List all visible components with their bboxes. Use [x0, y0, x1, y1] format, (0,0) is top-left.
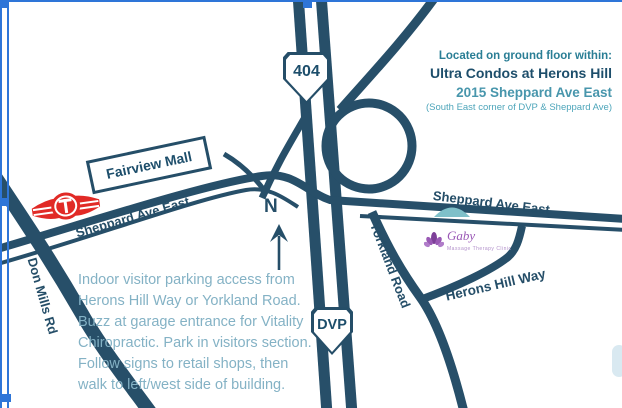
clinic-subtext: Massage Therapy Clinic	[447, 246, 512, 252]
north-arrow-icon	[268, 222, 292, 274]
info-line-corner: (South East corner of DVP & Sheppard Ave…	[426, 102, 612, 113]
selection-handle-left-middle[interactable]	[0, 198, 9, 206]
info-line-located: Located on ground floor within:	[426, 50, 612, 62]
highway-404-shield-label: 404	[293, 63, 320, 81]
faint-artifact	[612, 345, 622, 377]
parking-line: walk to left/west side of building.	[78, 375, 328, 396]
location-info-panel: Located on ground floor within: Ultra Co…	[426, 50, 612, 113]
map-image: 404 DVP Fairview Mall Sheppard Ave East …	[0, 0, 622, 408]
massage-clinic-logo: Gaby Massage Therapy Clinic	[424, 229, 512, 253]
parking-line: Chiropractic. Park in visitors section.	[78, 333, 328, 354]
north-label: N	[264, 196, 278, 218]
selection-handle-top-left[interactable]	[0, 0, 9, 8]
parking-instructions: Indoor visitor parking access from Heron…	[78, 270, 328, 396]
parking-line: Buzz at garage entrance for Vitality	[78, 312, 328, 333]
parking-line: Follow signs to retail shops, then	[78, 354, 328, 375]
parking-line: Indoor visitor parking access from	[78, 270, 328, 291]
selection-handle-bottom-left[interactable]	[2, 394, 11, 402]
northeast-ramp	[340, 0, 436, 110]
info-line-building: Ultra Condos at Herons Hill	[426, 65, 612, 81]
loop-ramp	[326, 103, 412, 189]
parking-line: Herons Hill Way or Yorkland Road.	[78, 291, 328, 312]
selection-handle-top-middle[interactable]	[303, 0, 312, 8]
lotus-flower-icon	[424, 229, 444, 253]
clinic-name: Gaby	[447, 229, 512, 242]
info-line-address: 2015 Sheppard Ave East	[426, 85, 612, 100]
